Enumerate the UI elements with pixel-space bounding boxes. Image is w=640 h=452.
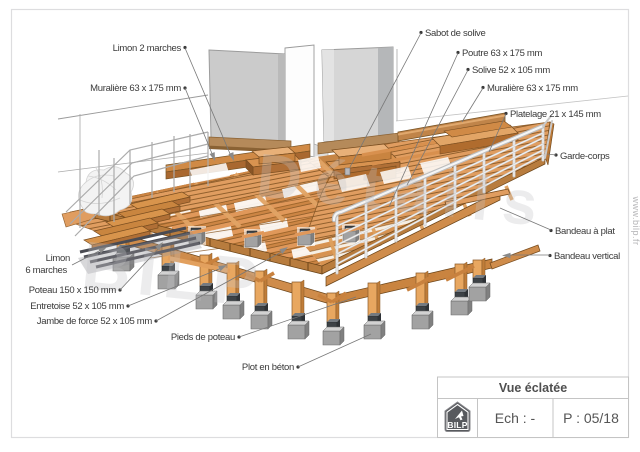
svg-text:Vue éclatée: Vue éclatée	[499, 381, 567, 395]
svg-text:Muralière 63 x 175 mm: Muralière 63 x 175 mm	[487, 83, 578, 94]
svg-text:BILP: BILP	[447, 420, 467, 430]
svg-text:Ech : -: Ech : -	[495, 410, 536, 426]
svg-text:www.bilp.fr: www.bilp.fr	[631, 195, 640, 245]
svg-text:Poteau 150 x 150 mm: Poteau 150 x 150 mm	[29, 285, 117, 296]
svg-text:6 marches: 6 marches	[25, 265, 67, 276]
svg-text:P : 05/18: P : 05/18	[563, 410, 619, 426]
svg-text:Garde-corps: Garde-corps	[560, 151, 610, 162]
svg-text:Poutre 63 x 175 mm: Poutre 63 x 175 mm	[462, 48, 543, 59]
svg-text:Sabot de solive: Sabot de solive	[425, 28, 485, 39]
svg-text:Jambe de force 52 x 105 mm: Jambe de force 52 x 105 mm	[37, 316, 153, 327]
svg-text:Muralière 63 x 175 mm: Muralière 63 x 175 mm	[90, 83, 181, 94]
svg-text:Bandeau à plat: Bandeau à plat	[555, 226, 615, 237]
svg-text:Entretoise 52 x 105 mm: Entretoise 52 x 105 mm	[30, 301, 124, 312]
svg-text:Plot en béton: Plot en béton	[242, 362, 294, 373]
svg-text:Platelage 21 x 145 mm: Platelage 21 x 145 mm	[510, 109, 601, 120]
svg-text:Limon: Limon	[46, 253, 70, 264]
svg-text:Solive 52 x 105 mm: Solive 52 x 105 mm	[472, 65, 550, 76]
svg-text:Bandeau vertical: Bandeau vertical	[554, 251, 620, 262]
svg-text:Limon 2 marches: Limon 2 marches	[113, 43, 182, 54]
svg-text:Pieds de poteau: Pieds de poteau	[171, 332, 235, 343]
